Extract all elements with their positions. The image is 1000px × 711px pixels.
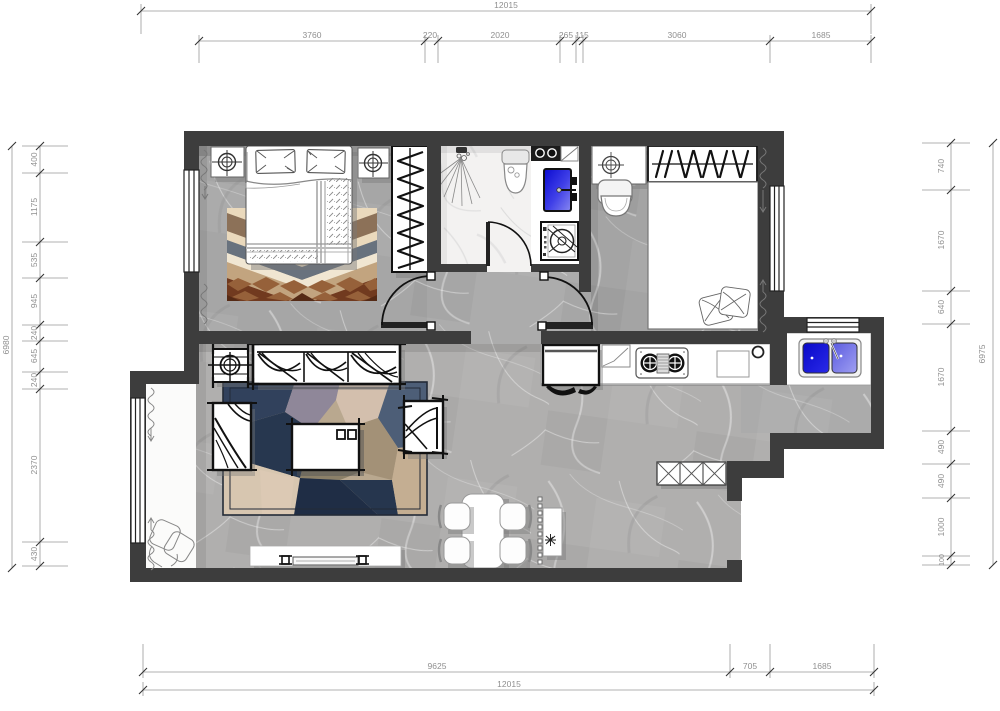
svg-text:640: 640	[936, 300, 946, 314]
svg-text:12015: 12015	[497, 679, 521, 689]
svg-text:6975: 6975	[977, 344, 987, 363]
svg-text:740: 740	[936, 159, 946, 173]
svg-text:3760: 3760	[303, 30, 322, 40]
svg-text:490: 490	[936, 440, 946, 454]
svg-text:705: 705	[743, 661, 757, 671]
svg-text:535: 535	[29, 253, 39, 267]
svg-text:490: 490	[936, 474, 946, 488]
svg-text:645: 645	[29, 349, 39, 363]
svg-text:1670: 1670	[936, 230, 946, 249]
svg-text:1685: 1685	[812, 30, 831, 40]
svg-text:1685: 1685	[813, 661, 832, 671]
svg-text:3060: 3060	[668, 30, 687, 40]
svg-text:1175: 1175	[29, 198, 39, 217]
svg-text:430: 430	[29, 547, 39, 561]
svg-text:240: 240	[29, 326, 39, 340]
svg-text:100: 100	[939, 554, 946, 566]
svg-text:945: 945	[29, 294, 39, 308]
svg-text:1000: 1000	[936, 517, 946, 536]
svg-text:1670: 1670	[936, 367, 946, 386]
svg-text:9625: 9625	[428, 661, 447, 671]
svg-text:265: 265	[559, 30, 573, 40]
svg-text:12015: 12015	[494, 0, 518, 10]
svg-text:115: 115	[575, 30, 589, 40]
svg-text:220: 220	[423, 30, 437, 40]
svg-text:240: 240	[29, 373, 39, 387]
svg-text:400: 400	[29, 152, 39, 166]
svg-text:6980: 6980	[1, 335, 11, 354]
svg-text:2370: 2370	[29, 455, 39, 474]
svg-text:2020: 2020	[491, 30, 510, 40]
